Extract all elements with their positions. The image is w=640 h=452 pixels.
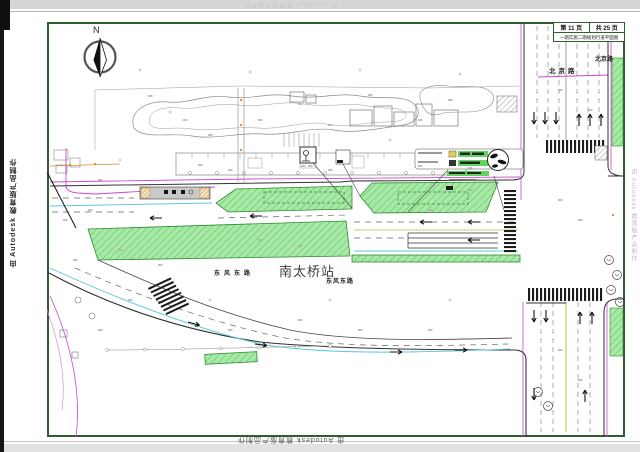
drawing-title: 一期实施二期规划行道平面图 (554, 33, 624, 42)
page-bottom-edge (0, 444, 640, 452)
road-label-dongfeng-west: 东风东路 (214, 268, 254, 277)
green-areas (88, 58, 623, 364)
page-number: 第 11 页 (554, 23, 590, 32)
road-label-beijing: 北京路 (549, 65, 578, 75)
page-top-rule (0, 11, 640, 12)
crosswalk-dongfeng (504, 190, 516, 252)
autodesk-watermark-right: 由 Autodesk 教育版产品制作 (629, 168, 638, 262)
road-label-dongfeng-east: 东风东路 (326, 276, 354, 285)
scan-corner-block (0, 0, 10, 30)
leader-line (47, 172, 76, 228)
scan-left-strip (0, 0, 4, 452)
title-block: 第 11 页 共 25 页 一期实施二期规划行道平面图 (553, 22, 625, 42)
compass-north-label: N (93, 25, 100, 35)
southwest-land-details (47, 296, 95, 437)
crosswalk-beijing-south (528, 288, 602, 301)
autodesk-watermark-left: 由 Autodesk 教育版产品制作 (9, 158, 19, 268)
page-total: 共 25 页 (590, 23, 625, 32)
cad-plan-page: 由 Autodesk 教育版产品制作 由 Autodesk 教育版产品制作 由 … (0, 0, 640, 452)
autodesk-watermark-top: 由 Autodesk 教育版产品制作 (243, 1, 337, 10)
left-side-lane (54, 88, 244, 182)
north-arrow-icon (85, 38, 116, 77)
crosswalk-curve (148, 277, 189, 315)
bus-bay-platform (140, 187, 210, 199)
detail-circle-icon (488, 150, 509, 171)
site-plan-canvas (47, 22, 625, 437)
road-label-beijing-upper: 北京路 (595, 54, 613, 63)
buildings-upper (284, 92, 458, 147)
